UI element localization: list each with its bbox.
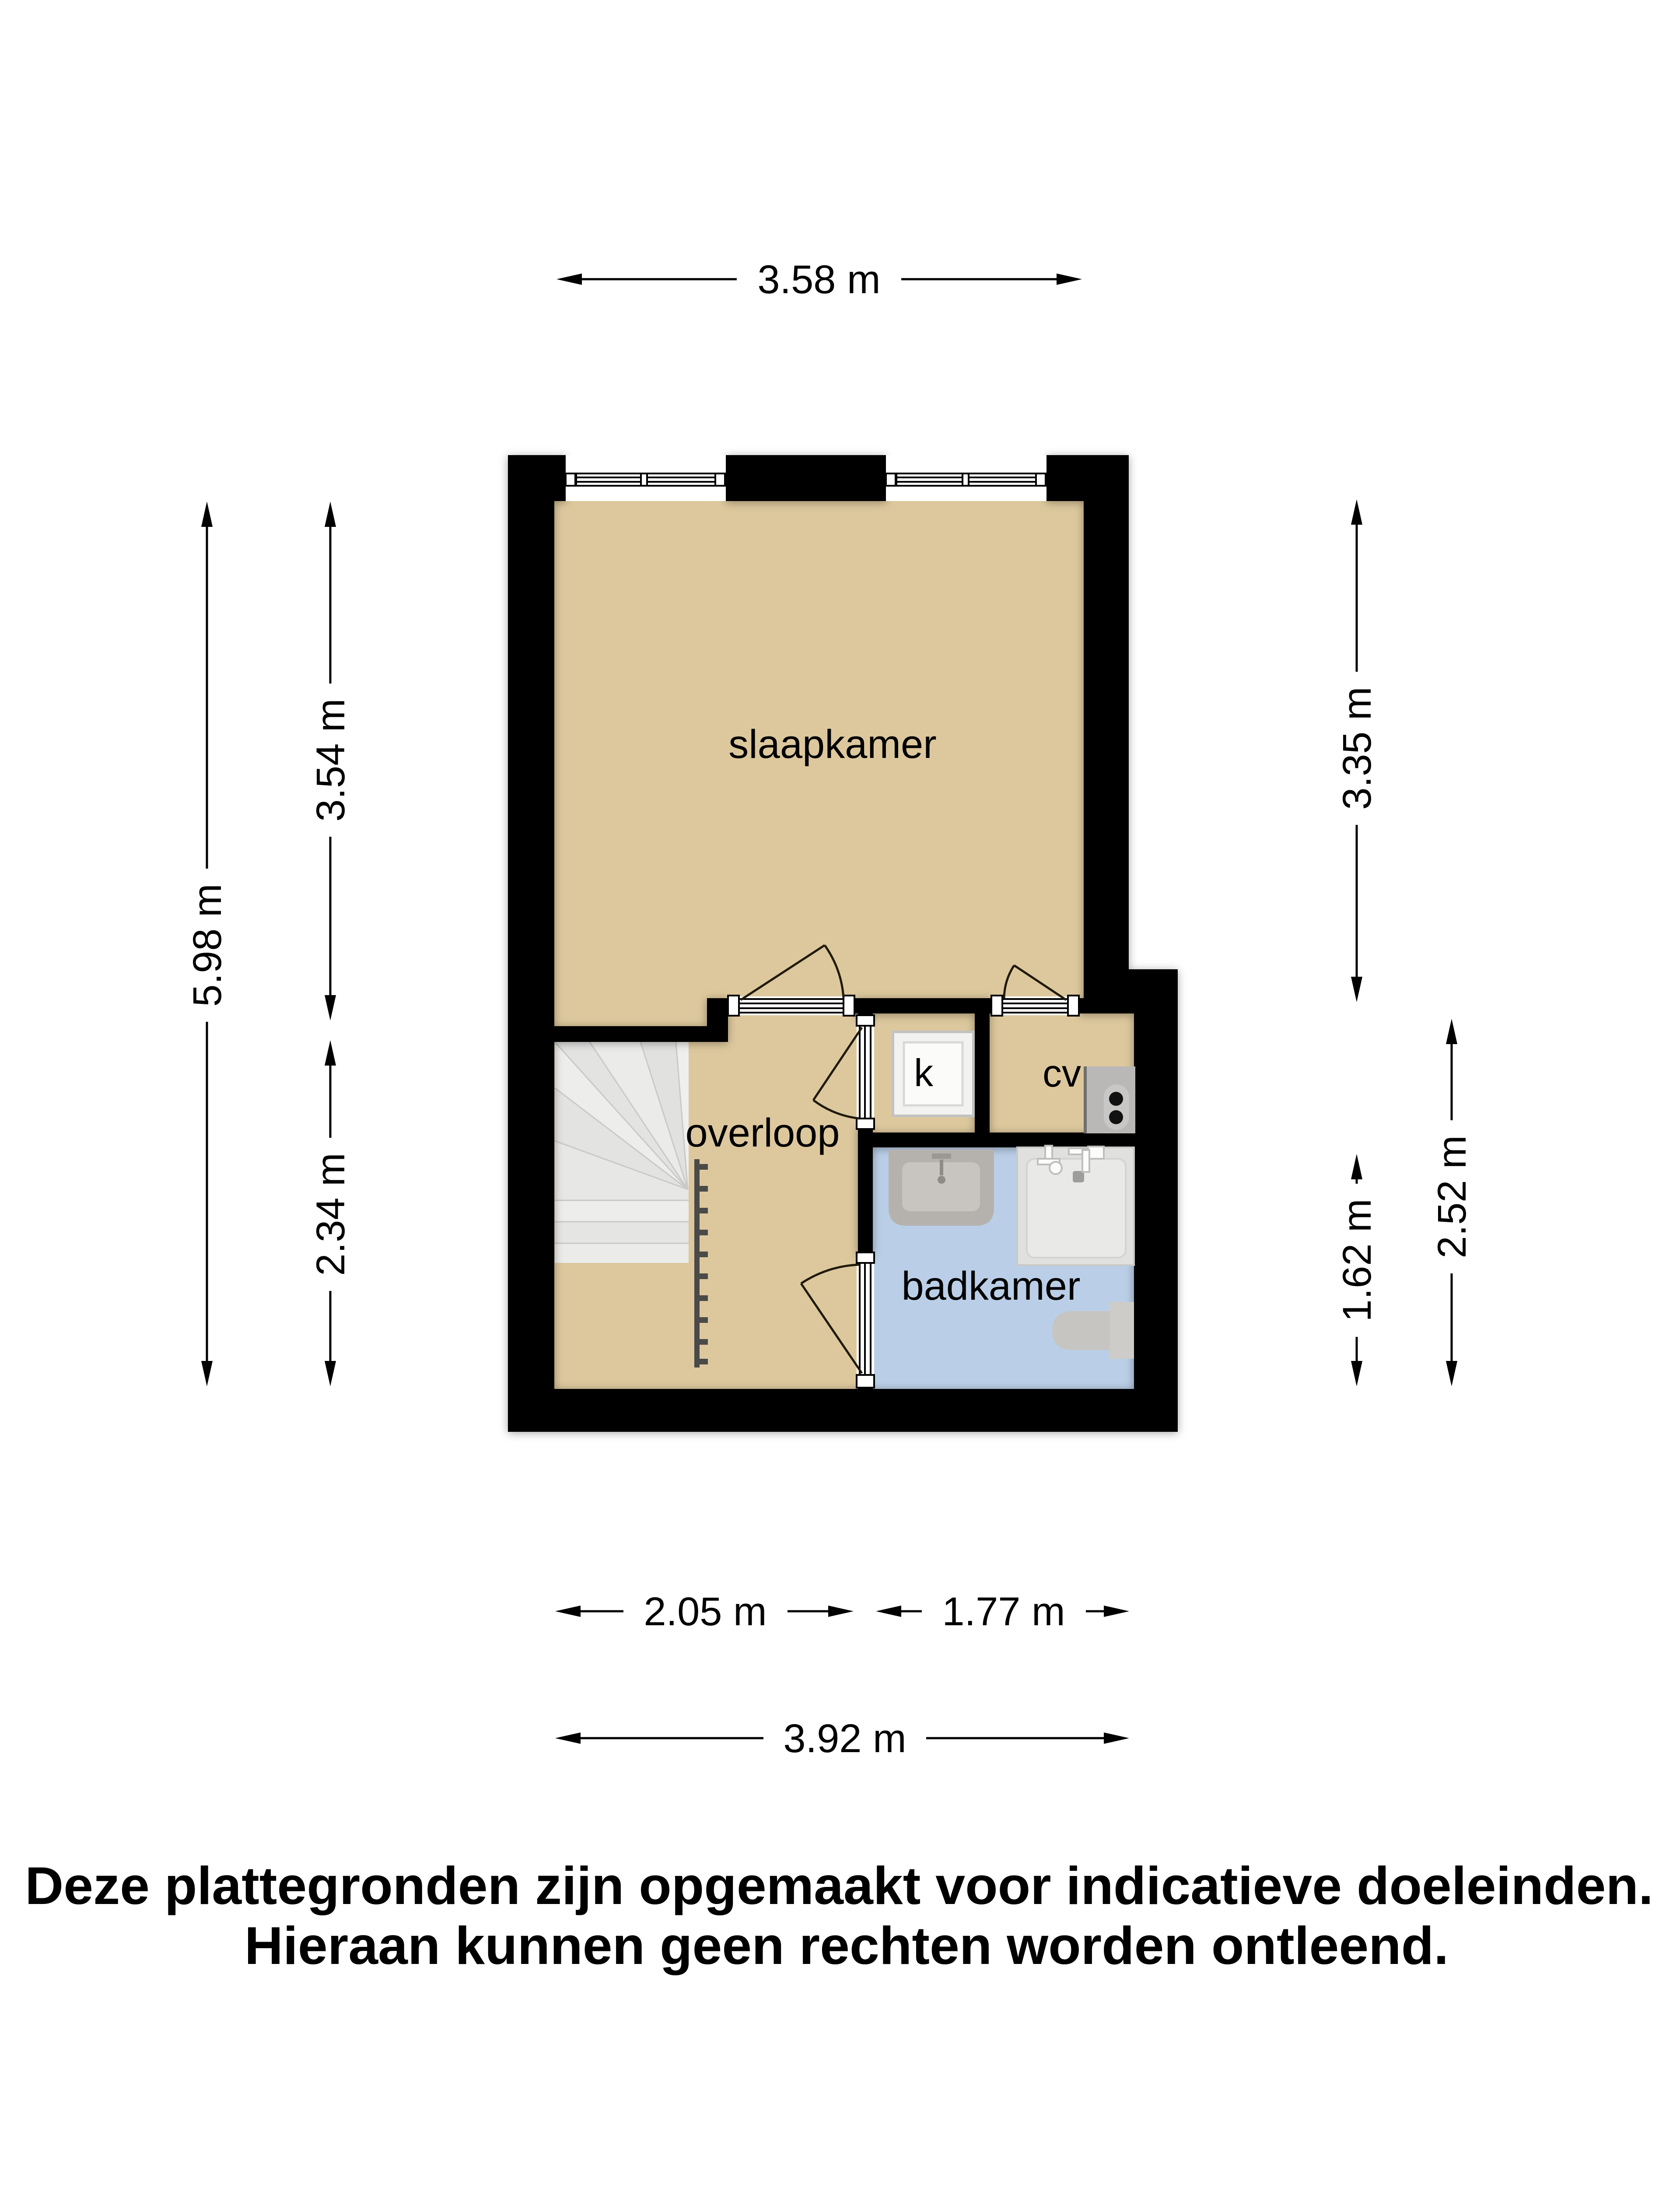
svg-text:3.35 m: 3.35 m [1335, 687, 1379, 810]
svg-text:2.34 m: 2.34 m [308, 1153, 353, 1276]
svg-text:5.98 m: 5.98 m [185, 884, 230, 1006]
svg-text:Deze plattegronden zijn opgema: Deze plattegronden zijn opgemaakt voor i… [25, 1856, 1653, 1915]
svg-text:1.62 m: 1.62 m [1335, 1199, 1379, 1322]
svg-text:overloop: overloop [686, 1111, 840, 1155]
svg-text:3.58 m: 3.58 m [757, 257, 880, 302]
svg-text:3.54 m: 3.54 m [308, 698, 353, 821]
svg-text:1.77 m: 1.77 m [942, 1589, 1065, 1634]
svg-text:cv: cv [1043, 1052, 1081, 1095]
svg-text:badkamer: badkamer [901, 1264, 1080, 1308]
svg-text:slaapkamer: slaapkamer [728, 722, 937, 767]
svg-text:k: k [914, 1051, 934, 1094]
svg-text:3.92 m: 3.92 m [783, 1716, 906, 1761]
svg-text:2.52 m: 2.52 m [1430, 1135, 1474, 1258]
svg-text:2.05 m: 2.05 m [644, 1589, 766, 1634]
svg-text:Hieraan kunnen geen rechten wo: Hieraan kunnen geen rechten worden ontle… [245, 1916, 1449, 1975]
